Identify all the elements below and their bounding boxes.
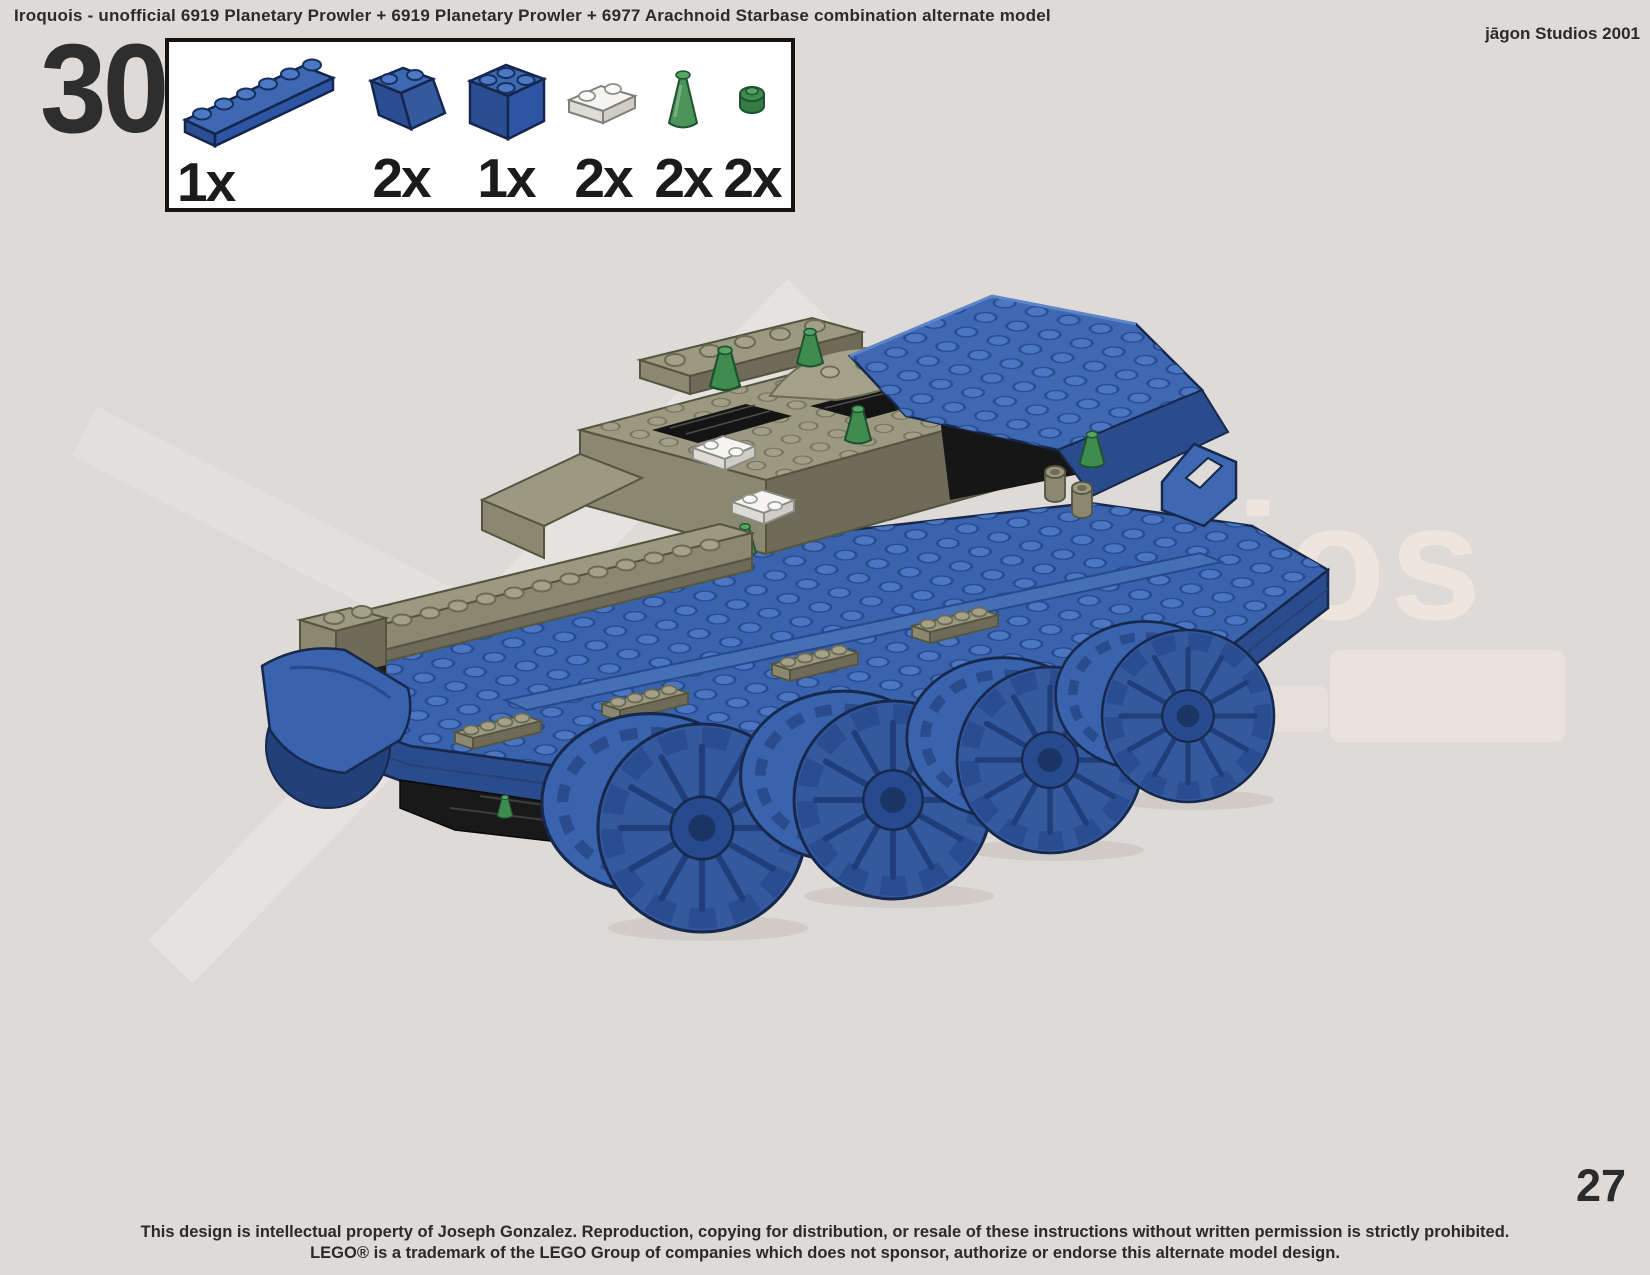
page-title: Iroquois - unofficial 6919 Planetary Pro…: [14, 6, 1051, 26]
part-quantity: 2x: [372, 152, 429, 204]
part-item: 2x: [349, 46, 453, 206]
part-icon-blue-brick-2x2: [454, 46, 559, 152]
footer-line-2: LEGO® is a trademark of the LEGO Group o…: [0, 1243, 1650, 1264]
part-icon-white-plate-1x2: [561, 46, 645, 152]
step-number: 30: [40, 26, 166, 152]
green-cone-icon: [661, 59, 705, 139]
part-quantity: 2x: [723, 152, 780, 204]
parts-box: 1x 2x: [165, 38, 795, 212]
part-icon-green-round-plate: [732, 46, 772, 152]
part-quantity: 1x: [177, 156, 234, 208]
instruction-page: Iroquois - unofficial 6919 Planetary Pro…: [0, 0, 1650, 1275]
part-quantity: 2x: [574, 152, 631, 204]
model-render: [250, 268, 1350, 968]
watermark-blob: [1330, 650, 1565, 742]
blue-plate-1x6-icon: [177, 46, 343, 156]
part-quantity: 1x: [477, 152, 534, 204]
part-item: 1x: [177, 46, 349, 206]
part-quantity: 2x: [654, 152, 711, 204]
part-icon-blue-slope-2x2: [351, 46, 451, 152]
page-number: 27: [1576, 1160, 1626, 1212]
blue-slope-icon: [351, 51, 451, 146]
part-item: 1x: [453, 46, 559, 206]
studio-credit: jāgon Studios 2001: [1485, 24, 1640, 44]
footer-line-1: This design is intellectual property of …: [0, 1222, 1650, 1243]
part-item: 2x: [647, 46, 719, 206]
part-item: 2x: [559, 46, 647, 206]
part-item: 2x: [719, 46, 785, 206]
part-icon-green-cone: [661, 46, 705, 152]
part-icon-blue-plate-1x6: [177, 46, 343, 156]
green-round-plate-icon: [732, 74, 772, 124]
blue-brick-icon: [454, 49, 559, 149]
white-plate-icon: [561, 68, 645, 130]
model-area: [250, 268, 1350, 968]
footer: This design is intellectual property of …: [0, 1222, 1650, 1264]
